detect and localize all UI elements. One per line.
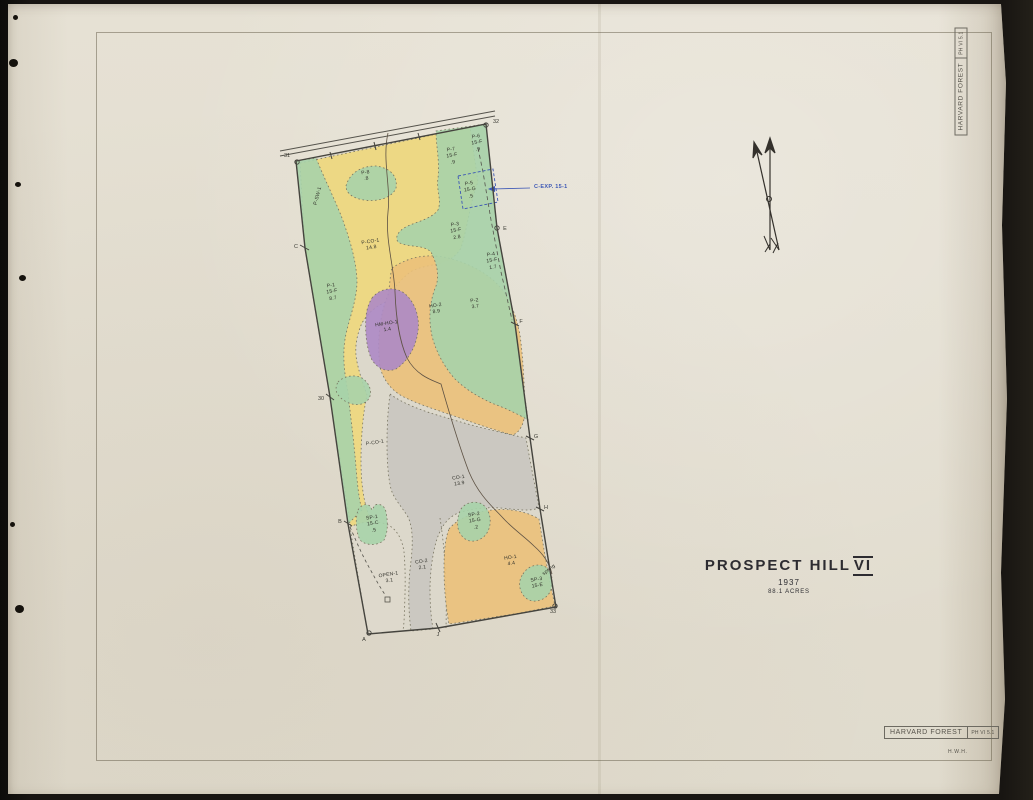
map-title: PROSPECT HILLVI: [699, 556, 879, 576]
harvard-forest-stamp-bottom-right: HARVARD FOREST PH VI 5.1: [884, 726, 999, 739]
stand-label: SP-1 15-C .5: [366, 514, 381, 534]
north-arrow: [753, 138, 779, 253]
map-drawing: [0, 0, 1033, 800]
corner-marker: 32: [493, 119, 499, 125]
corner-marker: 31: [284, 153, 290, 159]
stand-label: HO-2 8.9: [429, 302, 444, 316]
stand-label: CO-2 2.1: [415, 558, 430, 572]
corner-marker: H: [544, 505, 548, 511]
corner-marker: F: [519, 319, 522, 325]
corner-marker: C: [294, 244, 298, 250]
stand-label: CO-1 13.9: [452, 474, 467, 488]
stamp-code: PH VI 5.1: [955, 28, 968, 58]
stand-label: SP-3 15-E: [530, 576, 544, 590]
corner-marker: G: [534, 434, 538, 440]
scanned-map-sheet: P-8 .8 P-7 15-F .9 P-6 15-F .9 P-5 15-G …: [0, 0, 1033, 800]
stand-label: P-2 3.7: [470, 297, 480, 311]
map-acreage: 88.1 ACRES: [699, 589, 879, 595]
experiment-annotation: C-EXP. 15-1: [534, 184, 567, 190]
stand-label: SP-2 15-G .2: [468, 511, 483, 531]
map-year: 1937: [699, 578, 879, 587]
corner-marker: 33: [550, 609, 556, 615]
corner-marker: B: [338, 519, 342, 525]
stand-label: HO-1 4.4: [504, 554, 519, 568]
title-block: PROSPECT HILLVI 1937 88.1 ACRES: [699, 556, 879, 595]
corner-marker: E: [503, 226, 507, 232]
stamp-org: HARVARD FOREST: [884, 726, 968, 739]
harvard-forest-stamp-top-right: HARVARD FOREST PH VI 5.1: [955, 48, 968, 136]
roman-numeral: VI: [853, 556, 873, 576]
corner-marker: 30: [318, 396, 324, 402]
stamp-org: HARVARD FOREST: [955, 58, 968, 136]
corner-marker: J: [437, 632, 440, 638]
corner-marker: A: [362, 637, 366, 643]
stand-label: P-8 .8: [361, 169, 371, 183]
stamp-code: PH VI 5.1: [968, 726, 998, 739]
experiment-arrow: [492, 188, 530, 189]
surveyor-initials: H.W.H.: [948, 749, 967, 755]
